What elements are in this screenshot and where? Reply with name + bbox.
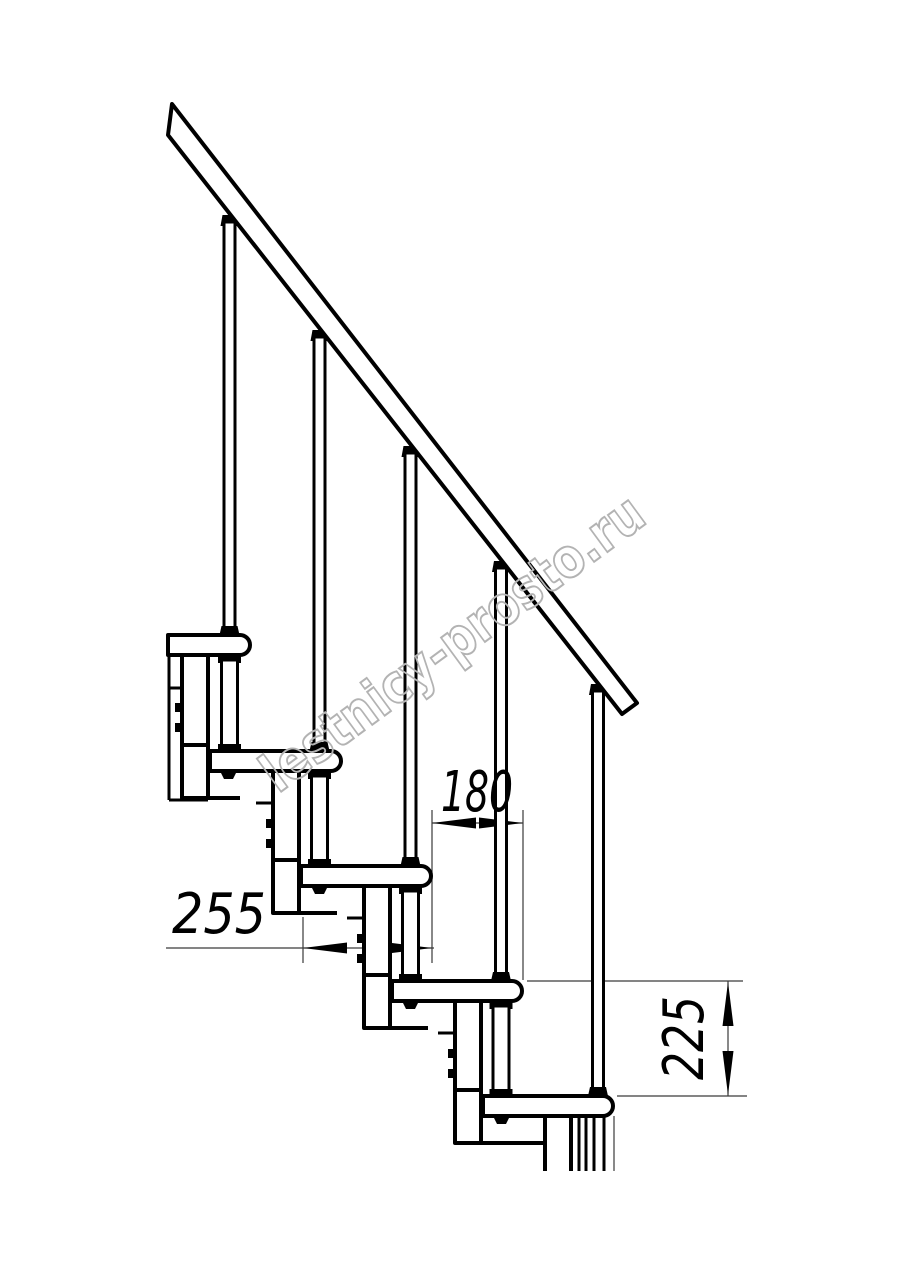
dimension-label-255: 255 — [172, 882, 266, 947]
stand-post-1 — [218, 656, 241, 751]
arrow-255-left — [303, 943, 347, 954]
arrow-225-up — [723, 982, 734, 1026]
baluster-5 — [588, 684, 608, 1096]
arrow-225-down — [723, 1051, 734, 1095]
tread-3 — [301, 866, 431, 886]
tread-4 — [392, 981, 522, 1001]
dimension-label-180: 180 — [441, 760, 513, 825]
tread-5 — [483, 1096, 613, 1116]
tread-1 — [168, 635, 250, 655]
stand-post-2 — [308, 772, 331, 866]
staircase-technical-drawing: 180 255 225 lestnicy-prosto.ru — [0, 0, 914, 1280]
dimension-label-225: 225 — [652, 996, 717, 1080]
baluster-2 — [310, 330, 330, 751]
stand-post-3 — [399, 887, 422, 981]
stand-post-4 — [490, 1002, 513, 1096]
staircase-drawing-svg: 180 255 225 lestnicy-prosto.ru — [0, 0, 914, 1280]
baluster-1 — [220, 215, 240, 635]
handrail — [168, 104, 637, 714]
support-bracket-5-cutoff — [545, 1116, 614, 1171]
support-bracket-4 — [438, 1001, 543, 1143]
